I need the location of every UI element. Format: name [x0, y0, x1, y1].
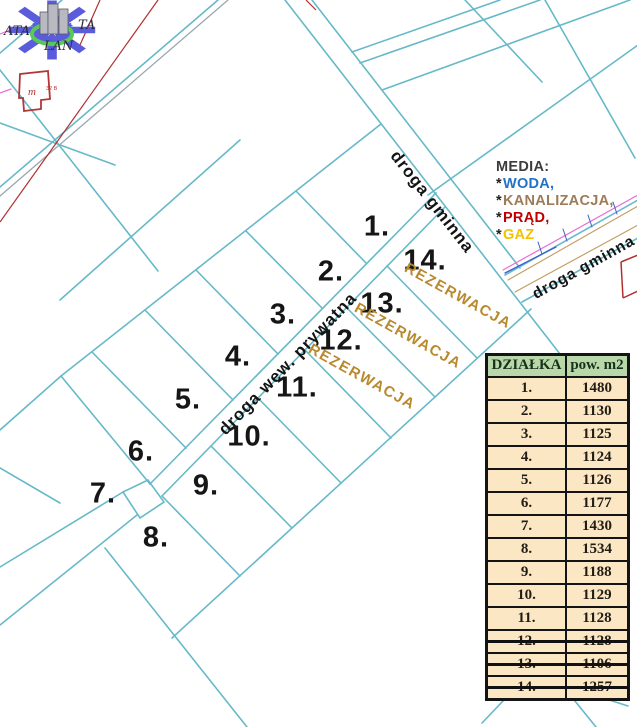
plot-label-2: 2.: [318, 256, 344, 289]
area-cell: 1177: [567, 493, 627, 514]
table-header-pow: pow. m2: [567, 356, 627, 376]
area-cell: 1128: [567, 608, 627, 629]
media-legend: MEDIA: *WODA, *KANALIZACJA, *PRĄD, *GAZ: [496, 159, 614, 244]
table-header-dzialka: DZIAŁKA: [488, 356, 567, 376]
media-item-woda: *WODA,: [496, 176, 614, 193]
media-item-prad: *PRĄD,: [496, 210, 614, 227]
table-row: 5.1126: [488, 468, 627, 491]
table-row: 3.1125: [488, 422, 627, 445]
area-cell: 1129: [567, 585, 627, 606]
area-cell: 1480: [567, 378, 627, 399]
plot-number-cell: 12.: [488, 631, 567, 652]
table-row: 8.1534: [488, 537, 627, 560]
plot-number-cell: 5.: [488, 470, 567, 491]
plot-label-5: 5.: [175, 384, 201, 417]
table-row: 7.1430: [488, 514, 627, 537]
logo-text-left: ATA: [3, 24, 30, 39]
area-cell: 1257: [567, 677, 627, 698]
media-bullet: *: [496, 193, 502, 209]
plot-number-cell: 10.: [488, 585, 567, 606]
media-bullet: *: [496, 176, 502, 192]
area-cell: 1188: [567, 562, 627, 583]
plot-label-9: 9.: [193, 470, 219, 503]
area-cell: 1130: [567, 401, 627, 422]
plot-label-6: 6.: [128, 436, 154, 469]
plot-label-1: 1.: [364, 211, 390, 244]
media-bullet: *: [496, 227, 502, 243]
logo-text-right: TA: [78, 18, 95, 33]
area-cell: 1128: [567, 631, 627, 652]
area-table: DZIAŁKA pow. m2 1.1480 2.1130 3.1125 4.1…: [485, 353, 630, 701]
table-row: 12.1128: [488, 629, 627, 652]
table-row: 9.1188: [488, 560, 627, 583]
plot-label-3: 3.: [270, 299, 296, 332]
plot-label-8: 8.: [143, 522, 169, 555]
media-item-kanalizacja: *KANALIZACJA,: [496, 193, 614, 210]
table-row: 13.1106: [488, 652, 627, 675]
area-cell: 1106: [567, 654, 627, 675]
plot-number-cell: 2.: [488, 401, 567, 422]
table-row: 1.1480: [488, 378, 627, 399]
plot-number-cell: 4.: [488, 447, 567, 468]
area-cell: 1125: [567, 424, 627, 445]
media-title: MEDIA:: [496, 159, 614, 176]
site-plan-map: m 32 B: [0, 0, 637, 727]
plot-number-cell: 14.: [488, 677, 567, 698]
plot-label-4: 4.: [225, 341, 251, 374]
building-label: m: [28, 86, 36, 98]
logo-text-bottom: LAN: [43, 39, 74, 54]
media-bullet: *: [496, 210, 502, 226]
table-row: 2.1130: [488, 399, 627, 422]
plot-number-cell: 13.: [488, 654, 567, 675]
logo-buildings: [40, 4, 68, 34]
media-label-woda: WODA,: [503, 176, 554, 192]
media-label-gaz: GAZ: [503, 227, 535, 243]
media-label-kanalizacja: KANALIZACJA,: [503, 193, 614, 209]
area-cell: 1124: [567, 447, 627, 468]
table-row: 6.1177: [488, 491, 627, 514]
plot-number-cell: 9.: [488, 562, 567, 583]
plot-number-cell: 3.: [488, 424, 567, 445]
plot-number-cell: 7.: [488, 516, 567, 537]
company-logo: ATA TA LAN: [3, 0, 95, 59]
plot-label-7: 7.: [90, 478, 116, 511]
plot-label-11: 11.: [276, 372, 318, 405]
table-row: 10.1129: [488, 583, 627, 606]
plot-number-cell: 1.: [488, 378, 567, 399]
table-row: 4.1124: [488, 445, 627, 468]
building-outline: m 32 B: [19, 71, 58, 111]
plot-label-10: 10.: [227, 421, 270, 454]
building-note: 32 B: [46, 86, 58, 92]
area-cell: 1534: [567, 539, 627, 560]
plot-number-cell: 8.: [488, 539, 567, 560]
plot-number-cell: 6.: [488, 493, 567, 514]
area-cell: 1430: [567, 516, 627, 537]
table-row: 14.1257: [488, 675, 627, 698]
table-header-row: DZIAŁKA pow. m2: [488, 356, 627, 378]
media-label-prad: PRĄD,: [503, 210, 550, 226]
area-cell: 1126: [567, 470, 627, 491]
plot-number-cell: 11.: [488, 608, 567, 629]
media-item-gaz: *GAZ: [496, 227, 614, 244]
table-row: 11.1128: [488, 606, 627, 629]
